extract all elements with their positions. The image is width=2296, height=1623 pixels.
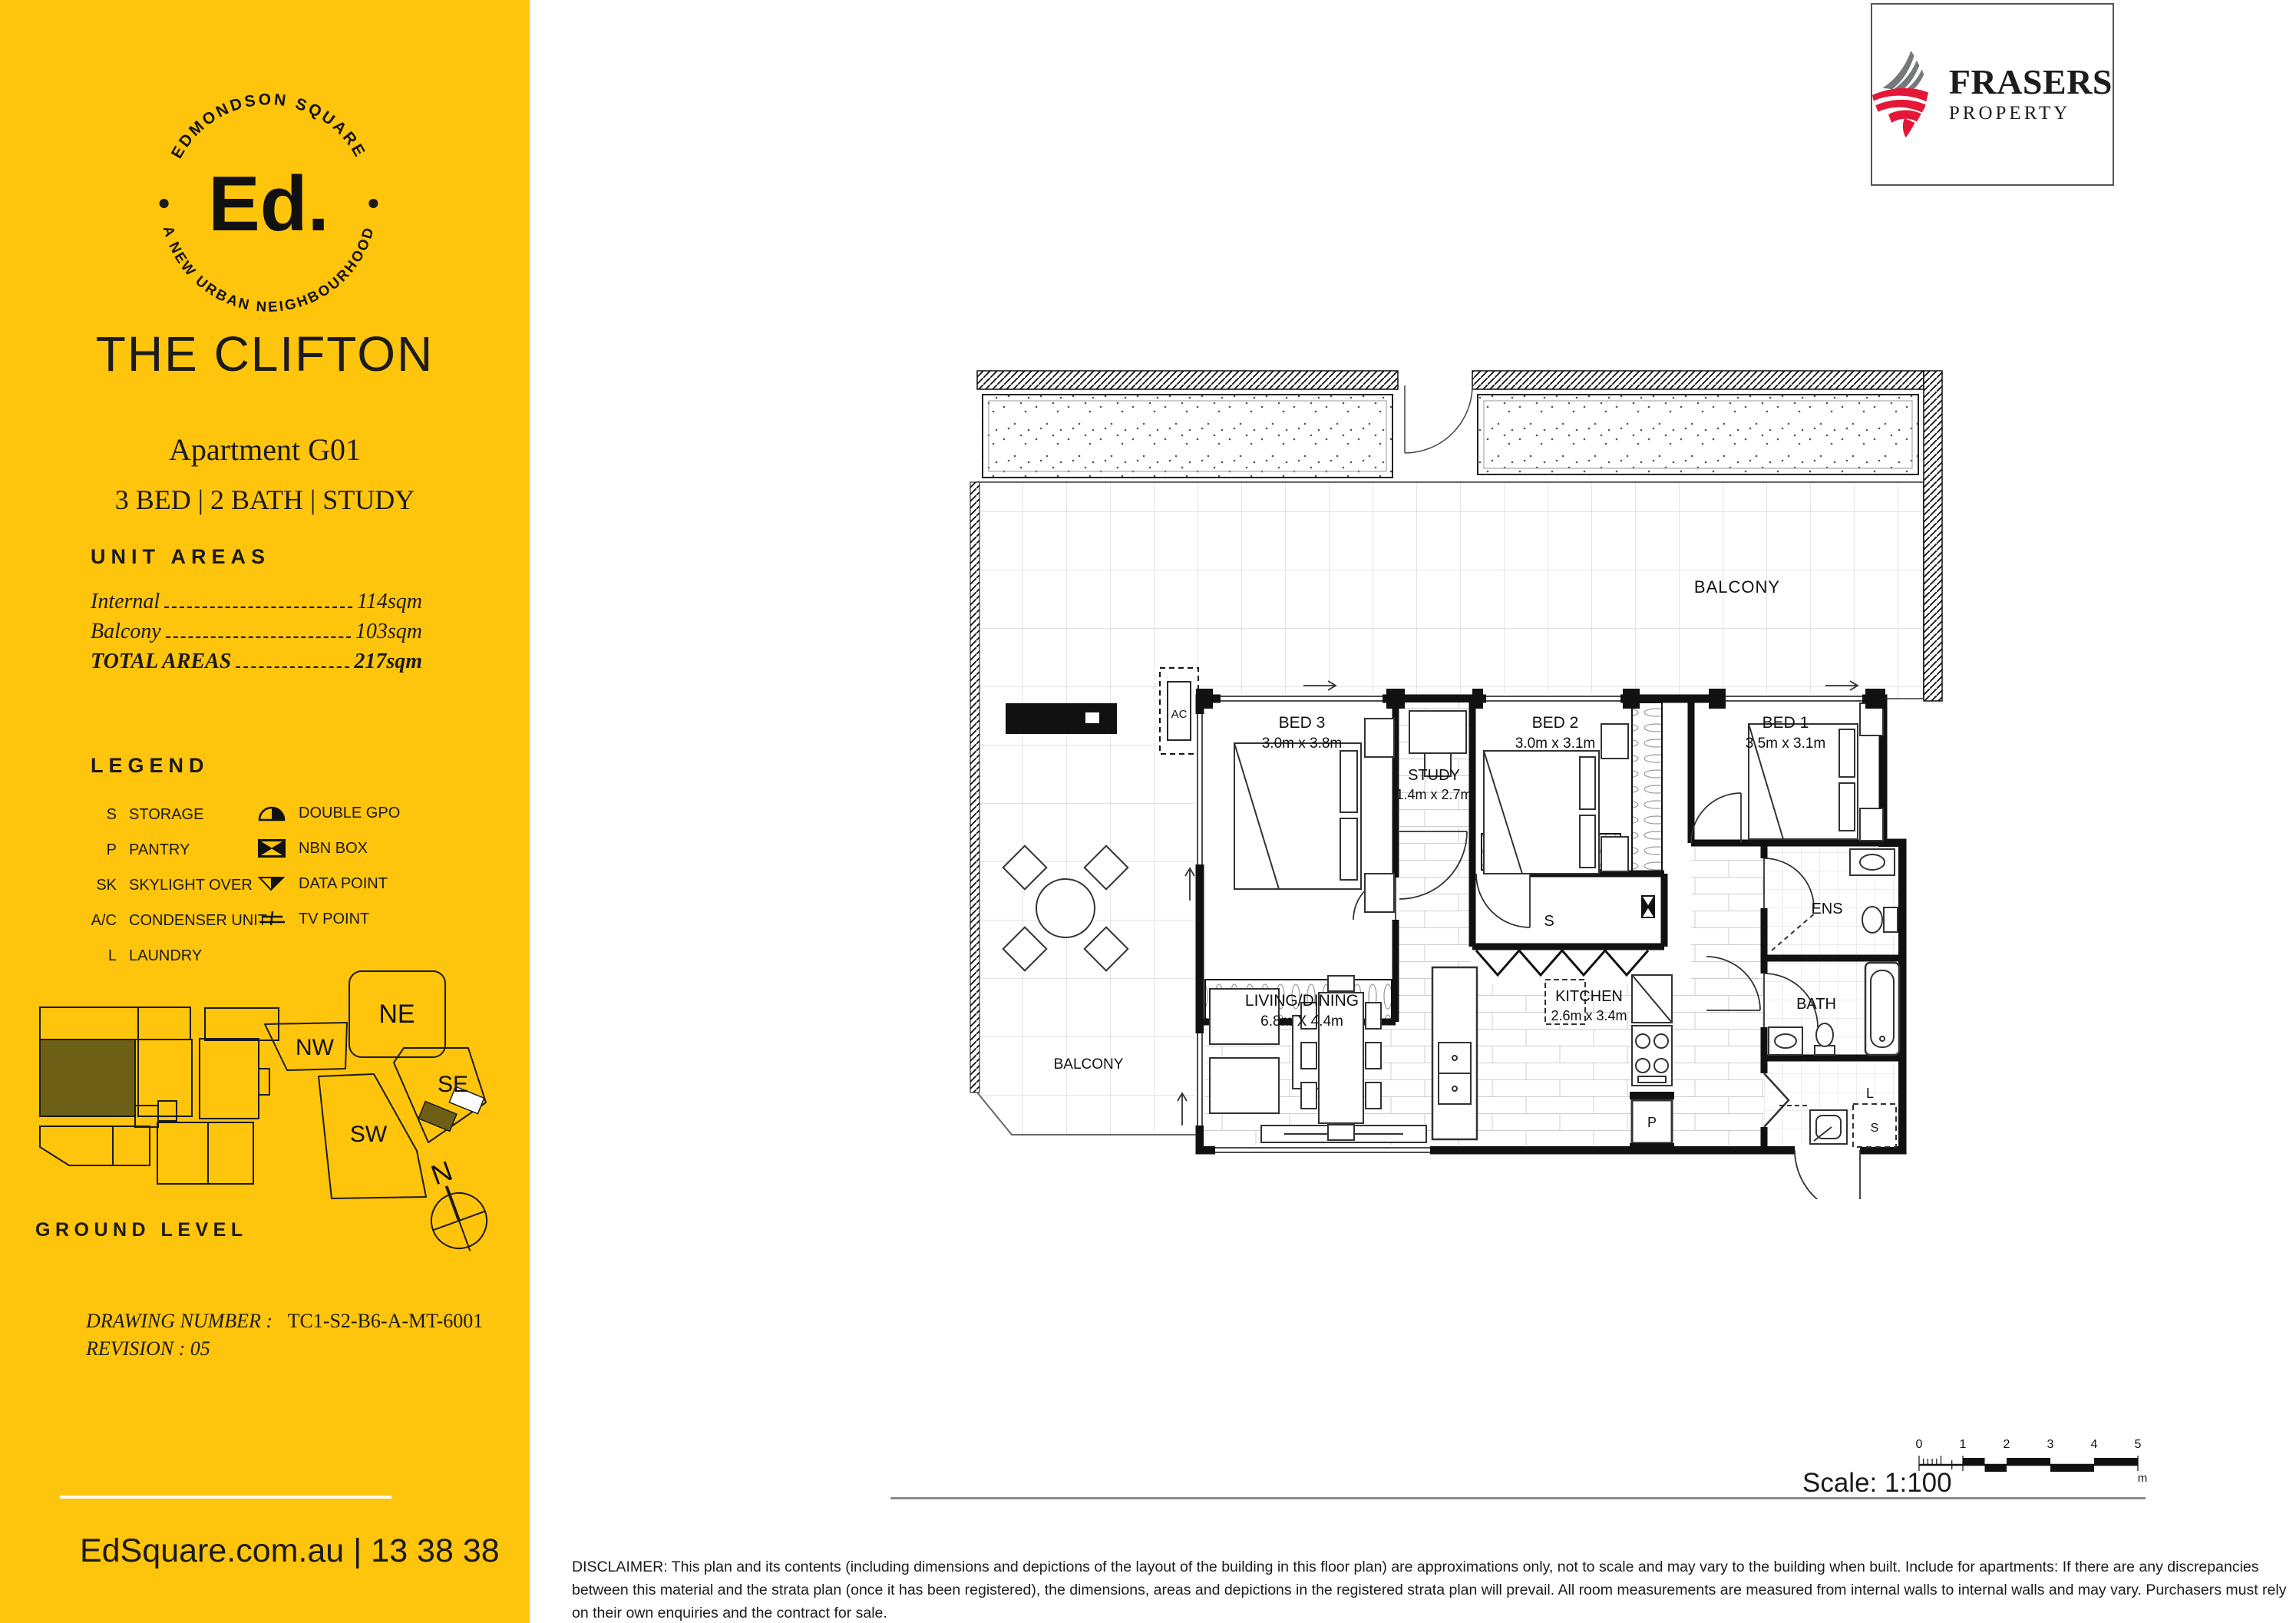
compass: N — [410, 1149, 496, 1261]
legend-label: TV POINT — [299, 911, 369, 928]
area-label: TOTAL AREAS — [91, 650, 231, 674]
scale-bar: 0 1 2 3 4 5 m — [1905, 1437, 2151, 1486]
leader-line — [166, 636, 351, 638]
logo-dot-right — [368, 199, 378, 208]
edmondson-square-logo: EDMONDSON SQUARE A NEW URBAN NEIGHBOURHO… — [142, 77, 395, 330]
disclaimer-text: DISCLAIMER: This plan and its contents (… — [572, 1555, 2290, 1623]
study-label: STUDY — [1408, 767, 1460, 784]
laundry-marker: L — [1866, 1086, 1874, 1101]
area-label: Internal — [91, 590, 160, 614]
keyplan-se-unit — [418, 1102, 457, 1132]
balcony-bench-detail — [1085, 712, 1099, 723]
scale-unit: m — [2138, 1472, 2148, 1485]
area-value: 103sqm — [355, 620, 422, 644]
legend-item-condenser: A/C CONDENSER UNIT — [80, 912, 267, 929]
level-label: GROUND LEVEL — [35, 1219, 248, 1241]
frasers-wordmark: FRASERS PROPERTY — [1949, 64, 2113, 124]
drawing-number: DRAWING NUMBER : TC1-S2-B6-A-MT-6001 — [86, 1310, 483, 1333]
bath-label: BATH — [1796, 996, 1836, 1013]
legend-key: P — [80, 841, 117, 859]
apartment-number: Apartment G01 — [0, 431, 530, 468]
quadrant-sw: SW — [350, 1122, 388, 1147]
legend-label: NBN BOX — [299, 840, 368, 858]
quadrant-nw: NW — [296, 1035, 335, 1060]
bed3-dims: 3.0m x 3.8m — [1262, 735, 1343, 752]
logo-ring-top: EDMONDSON SQUARE — [168, 91, 369, 161]
study-dims: 1.4m x 2.7m — [1396, 787, 1472, 802]
legend-label: CONDENSER UNIT — [129, 912, 267, 930]
legend-key: S — [80, 806, 117, 824]
bed2-label: BED 2 — [1532, 714, 1579, 732]
balcony-left-label: BALCONY — [1054, 1056, 1124, 1073]
legend-key: SK — [80, 877, 117, 894]
unit-areas-heading: UNIT AREAS — [91, 545, 270, 569]
legend-item-tv-point: TV POINT — [257, 911, 400, 927]
sidebar: EDMONDSON SQUARE A NEW URBAN NEIGHBOURHO… — [0, 0, 530, 1623]
scale-tick: 2 — [2004, 1438, 2010, 1451]
storage-marker: S — [1544, 913, 1554, 930]
bottom-divider — [890, 1497, 2146, 1499]
living-dims: 6.8m X 4.4m — [1260, 1013, 1343, 1030]
brand-sub: PROPERTY — [1949, 103, 2113, 124]
area-value: 217sqm — [354, 650, 422, 674]
pantry-marker: P — [1647, 1115, 1657, 1130]
laundry-storage-marker: S — [1871, 1122, 1879, 1135]
legend-label: PANTRY — [129, 841, 190, 859]
legend-heading: LEGEND — [91, 754, 210, 778]
area-row-total: TOTAL AREAS 217sqm — [91, 650, 422, 674]
legend-abbreviations: S STORAGE P PANTRY SK SKYLIGHT OVER A/C … — [80, 806, 267, 964]
legend-label: SKYLIGHT OVER — [129, 877, 253, 894]
legend-item-data-point: DATA POINT — [257, 875, 400, 892]
legend-item-double-gpo: DOUBLE GPO — [257, 805, 400, 821]
balcony-gate-door — [1405, 385, 1472, 453]
floorplan-page: EDMONDSON SQUARE A NEW URBAN NEIGHBOURHO… — [0, 0, 2296, 1623]
page-title: THE CLIFTON — [0, 326, 530, 382]
legend-item-nbn-box: NBN BOX — [257, 840, 400, 857]
data-point-icon — [257, 875, 291, 892]
footer-divider — [60, 1496, 391, 1499]
living-label: LIVING/DINING — [1245, 992, 1359, 1010]
key-plan: NE NW SE SW N — [21, 961, 516, 1296]
legend-label: DATA POINT — [299, 875, 388, 893]
brand-name: FRASERS — [1949, 64, 2113, 100]
compass-north: N — [427, 1155, 456, 1191]
bed1-label: BED 1 — [1762, 714, 1809, 732]
legend-item-storage: S STORAGE — [80, 806, 267, 823]
floor-plan: AC — [935, 336, 1982, 1199]
leader-line — [164, 607, 352, 608]
area-value: 114sqm — [357, 590, 422, 614]
ensuite-label: ENS — [1811, 901, 1842, 917]
bed2-dims: 3.0m x 3.1m — [1515, 735, 1596, 752]
balcony-top-label: BALCONY — [1694, 577, 1780, 597]
frasers-property-logo-box: FRASERS PROPERTY — [1871, 3, 2114, 186]
footer-contact: EdSquare.com.au | 13 38 38 — [80, 1532, 500, 1570]
scale-tick: 4 — [2091, 1438, 2098, 1451]
nbn-box-marker — [1641, 895, 1655, 918]
balcony-left-railing — [970, 482, 980, 1092]
svg-text:AC: AC — [1171, 708, 1188, 721]
bed1-dims: 3.5m x 3.1m — [1746, 735, 1826, 752]
scale-tick: 1 — [1960, 1438, 1967, 1451]
ac-condenser-unit: AC — [1160, 668, 1198, 754]
kitchen-label: KITCHEN — [1555, 988, 1623, 1005]
area-row-balcony: Balcony 103sqm — [91, 620, 422, 644]
tv-point-icon — [257, 910, 291, 928]
logo-monogram: Ed. — [208, 160, 329, 247]
kitchen-dims: 2.6m x 3.4m — [1551, 1008, 1627, 1023]
legend-label: STORAGE — [129, 806, 203, 824]
double-gpo-icon — [257, 804, 291, 822]
leader-line — [236, 666, 349, 668]
frasers-swoosh-icon — [1872, 44, 1937, 145]
area-row-internal: Internal 114sqm — [91, 590, 422, 614]
legend-symbols: DOUBLE GPO NBN BOX DATA POINT — [257, 805, 400, 927]
legend-key: A/C — [80, 912, 117, 930]
quadrant-ne: NE — [378, 1000, 415, 1029]
revision: REVISION : 05 — [86, 1337, 210, 1360]
scale-tick: 0 — [1916, 1438, 1923, 1451]
bed-bath-config: 3 BED | 2 BATH | STUDY — [0, 484, 530, 516]
nbn-box-icon — [257, 838, 291, 858]
area-label: Balcony — [91, 620, 161, 644]
legend-item-pantry: P PANTRY — [80, 841, 267, 858]
balcony-bench — [1006, 703, 1117, 734]
drawing-number-value: TC1-S2-B6-A-MT-6001 — [288, 1310, 484, 1332]
legend-label: DOUBLE GPO — [299, 805, 400, 822]
drawing-number-label: DRAWING NUMBER : — [86, 1310, 273, 1332]
scale-tick: 3 — [2047, 1438, 2054, 1451]
keyplan-highlighted-unit — [40, 1040, 135, 1116]
unit-areas-table: Internal 114sqm Balcony 103sqm TOTAL ARE… — [91, 590, 422, 679]
scale-tick: 5 — [2135, 1438, 2142, 1451]
quadrant-se: SE — [438, 1072, 468, 1097]
legend-item-skylight: SK SKYLIGHT OVER — [80, 877, 267, 894]
bed3-label: BED 3 — [1279, 714, 1326, 732]
logo-dot-left — [160, 199, 169, 208]
